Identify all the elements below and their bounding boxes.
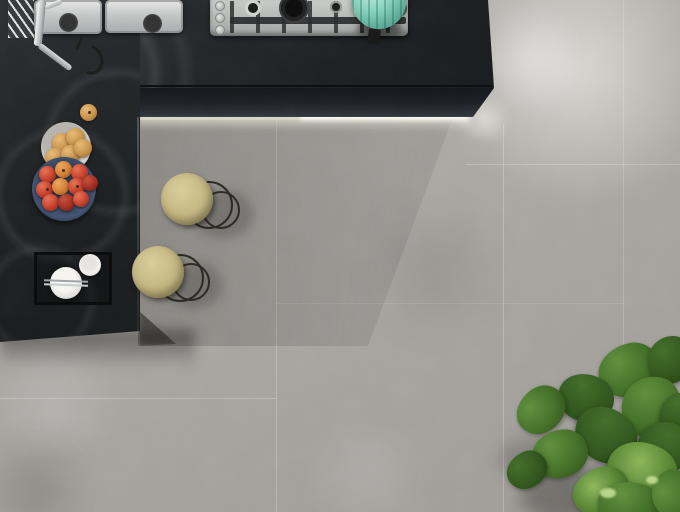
apple — [52, 178, 69, 195]
cooktop-knob — [215, 13, 225, 23]
floor-light-bottom-mid — [290, 420, 450, 512]
apple-stem — [46, 188, 49, 191]
cabinet-front — [138, 86, 494, 118]
apple — [42, 194, 59, 211]
apple-stem — [76, 185, 79, 188]
tile-grout-horizontal — [466, 164, 680, 165]
tan-fruit — [74, 139, 92, 157]
sink-drain — [143, 14, 162, 33]
kitchen-photo — [0, 0, 680, 512]
kettle-handle — [367, 28, 381, 45]
tile-grout-horizontal — [0, 398, 276, 399]
fruit-stem — [88, 111, 91, 114]
apple — [73, 191, 89, 207]
burner — [330, 1, 342, 13]
sink-drain — [59, 13, 78, 32]
leaf-highlight — [646, 476, 658, 484]
cooktop-knob — [215, 1, 225, 11]
cabinet-step-line — [138, 85, 492, 87]
stool-seat — [132, 246, 184, 298]
apple-stem — [62, 169, 65, 172]
cooktop-knob — [215, 25, 225, 35]
leaf-highlight — [600, 488, 616, 498]
apple — [82, 175, 98, 191]
sink-drying-rack — [8, 0, 34, 38]
small-bowl — [79, 254, 101, 276]
stool-seat — [161, 173, 213, 225]
burner — [245, 0, 261, 16]
island-edge-highlight — [137, 117, 139, 331]
